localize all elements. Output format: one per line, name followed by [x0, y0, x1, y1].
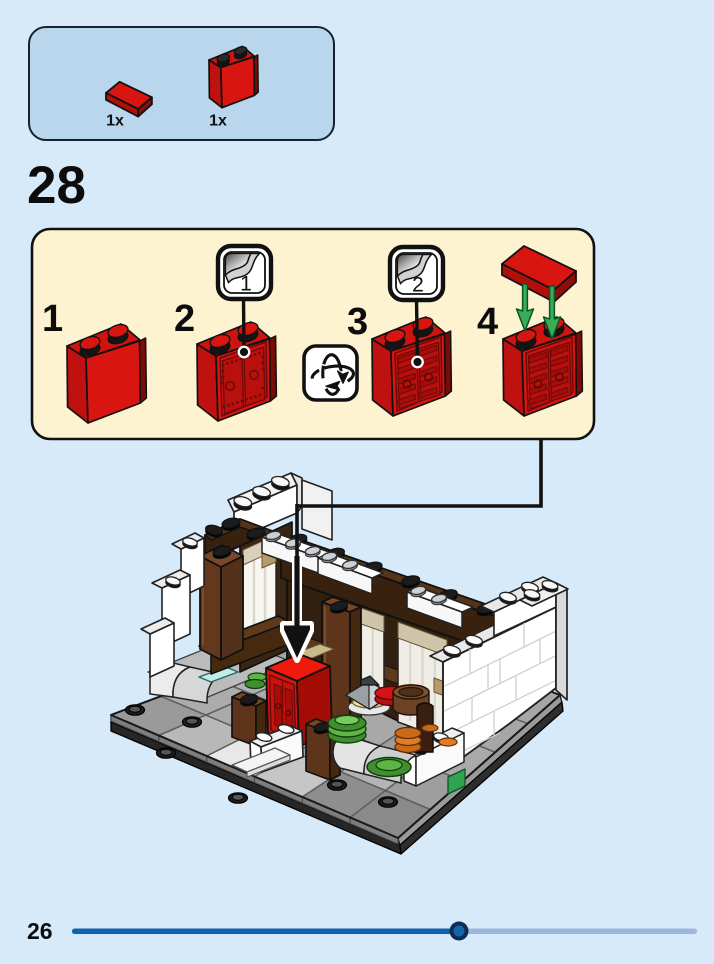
svg-text:1x: 1x: [209, 113, 227, 130]
svg-text:26: 26: [27, 918, 53, 944]
svg-text:2: 2: [412, 274, 424, 297]
svg-text:1: 1: [240, 273, 252, 296]
svg-text:4: 4: [477, 301, 498, 343]
svg-text:2: 2: [174, 298, 195, 340]
svg-text:1: 1: [42, 298, 63, 340]
svg-text:28: 28: [27, 156, 86, 215]
svg-text:1x: 1x: [106, 113, 124, 130]
svg-text:3: 3: [347, 301, 368, 343]
